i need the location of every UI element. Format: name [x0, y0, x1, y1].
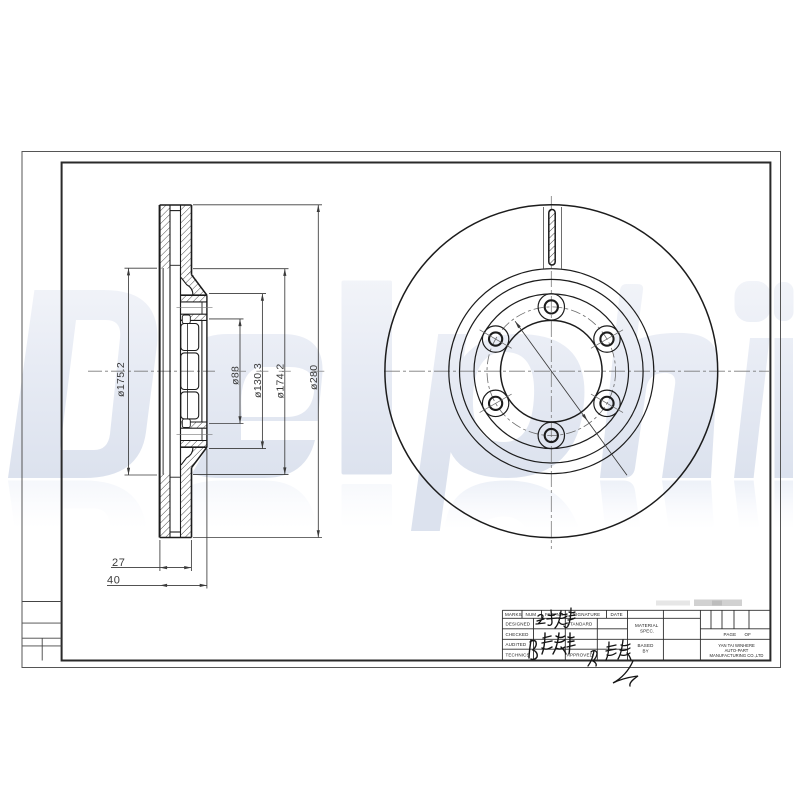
svg-text:40: 40	[107, 575, 120, 587]
svg-text:PAGE: PAGE	[724, 632, 737, 637]
svg-text:OF: OF	[745, 632, 752, 637]
svg-text:MARKS: MARKS	[505, 612, 522, 617]
svg-text:ø174.2: ø174.2	[274, 363, 286, 398]
svg-text:STANDARD: STANDARD	[567, 622, 593, 627]
svg-text:TECHNICS: TECHNICS	[506, 653, 530, 658]
svg-text:DESIGNED: DESIGNED	[506, 622, 531, 627]
svg-text:MANUFACTURING CO.,LTD: MANUFACTURING CO.,LTD	[710, 653, 764, 658]
svg-text:APPROVED: APPROVED	[567, 653, 594, 658]
svg-text:SIGNATURE: SIGNATURE	[573, 612, 600, 617]
svg-text:BASED: BASED	[638, 643, 655, 648]
svg-text:ø175.2: ø175.2	[115, 362, 127, 397]
svg-text:CHECKED: CHECKED	[506, 632, 530, 637]
svg-text:27: 27	[112, 557, 125, 569]
svg-text:NUM: NUM	[526, 612, 537, 617]
svg-text:ø88: ø88	[230, 366, 242, 385]
svg-text:DATE: DATE	[611, 612, 623, 617]
svg-text:SPEC.: SPEC.	[640, 628, 654, 633]
svg-text:ø280: ø280	[308, 364, 320, 390]
svg-text:AUDITED: AUDITED	[506, 642, 527, 647]
svg-text:BY: BY	[643, 648, 649, 653]
svg-text:MATERIAL: MATERIAL	[635, 623, 659, 628]
svg-text:ø130.3: ø130.3	[252, 363, 264, 398]
